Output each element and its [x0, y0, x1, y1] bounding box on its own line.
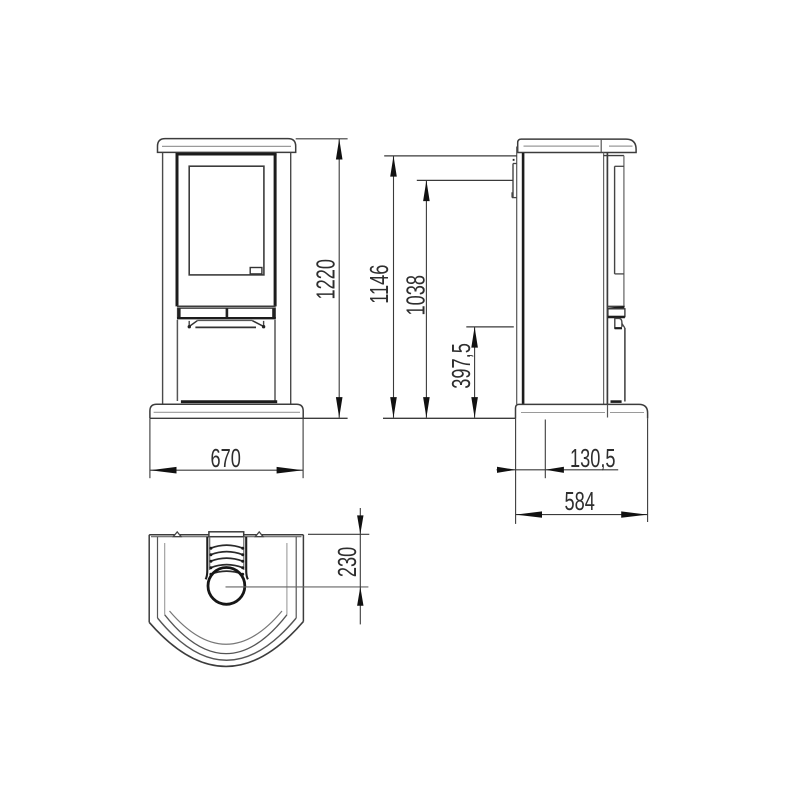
- svg-text:1146: 1146: [365, 265, 394, 304]
- svg-text:130,5: 130,5: [570, 444, 616, 473]
- svg-text:1038: 1038: [401, 275, 430, 315]
- svg-text:397,5: 397,5: [447, 343, 476, 389]
- svg-text:584: 584: [565, 487, 595, 516]
- svg-text:1220: 1220: [311, 259, 340, 299]
- svg-text:230: 230: [333, 547, 362, 577]
- svg-text:670: 670: [211, 444, 241, 473]
